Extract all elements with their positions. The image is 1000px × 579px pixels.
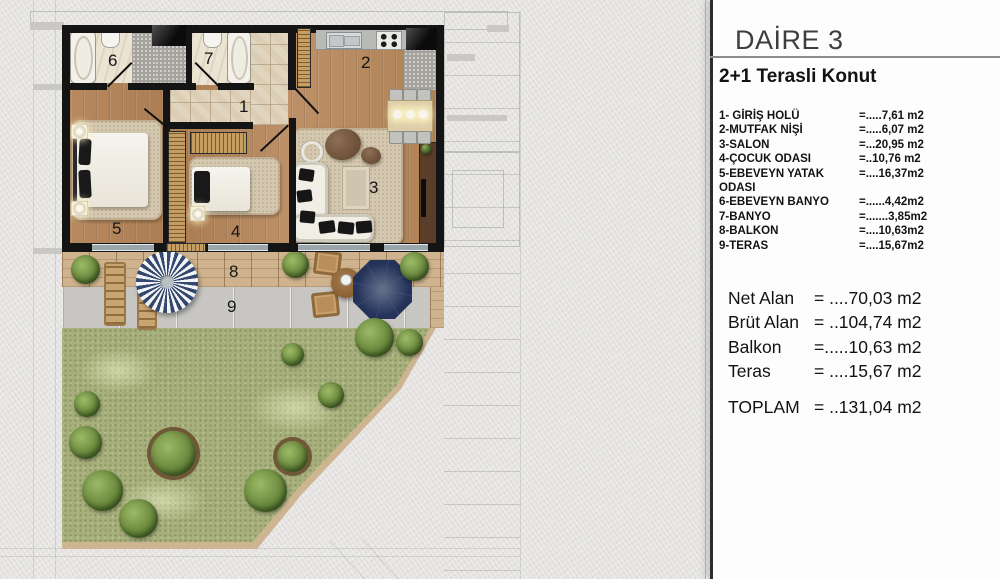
sketch-hatch-2 xyxy=(487,25,509,32)
room-list-item-label: 2-MUTFAK NİŞİ xyxy=(719,123,859,137)
room-list-item: 9-TERAS=....15,67m2 xyxy=(719,239,969,253)
hall-tiles-upper xyxy=(250,33,288,125)
table-plate xyxy=(419,110,428,119)
room-number-hall: 1 xyxy=(239,97,248,117)
summary-item-label: Balkon xyxy=(728,335,814,359)
window xyxy=(298,244,370,251)
hall-tiles-lower xyxy=(170,90,250,123)
sofa-cushion xyxy=(356,220,373,233)
bedroom4-dresser xyxy=(190,132,247,154)
room-list-item-label: 5-EBEVEYN YATAK ODASI xyxy=(719,167,859,196)
summary-item-label: Net Alan xyxy=(728,286,814,310)
sketch-top-fill-left xyxy=(30,22,64,30)
kitchen-sink xyxy=(326,32,362,49)
summary-item: Teras= ....15,67 m2 xyxy=(728,359,968,383)
nightstand-lamp xyxy=(73,202,86,215)
kitchen-tall-cabinet xyxy=(406,28,437,50)
bed-pillow xyxy=(78,139,91,166)
summary-item: Balkon=.....10,63 m2 xyxy=(728,335,968,359)
bush xyxy=(82,470,123,511)
total-label: TOPLAM xyxy=(728,397,814,418)
wall-room4-right xyxy=(289,118,296,251)
entry-wardrobe xyxy=(297,28,311,88)
summary-item: Net Alan= ....70,03 m2 xyxy=(728,286,968,310)
wall-bath-bottom-1 xyxy=(69,83,107,90)
sink-basin xyxy=(344,36,360,46)
room-list-item-label: 4-ÇOCUK ODASI xyxy=(719,152,859,166)
sofa-cushion xyxy=(296,189,312,203)
room-list-item-label: 1- GİRİŞ HOLÜ xyxy=(719,109,859,123)
garden xyxy=(58,328,448,550)
room-number-cocuk: 4 xyxy=(231,222,240,242)
sketch-tick-left-1 xyxy=(33,84,62,90)
sketch-tick-left-2 xyxy=(33,248,62,254)
room-list-item-value: =....15,67m2 xyxy=(859,239,924,253)
bush-with-soil xyxy=(151,431,196,476)
bush xyxy=(282,251,309,278)
room-number-ebanyo: 6 xyxy=(108,51,117,71)
total-value: = ..131,04 m2 xyxy=(814,397,922,418)
table-kettle xyxy=(340,274,352,286)
summary-item-label: Teras xyxy=(728,359,814,383)
dining-chair xyxy=(389,131,403,144)
nightstand-lamp xyxy=(73,125,86,138)
sofa-cushion xyxy=(318,220,336,234)
window xyxy=(384,244,428,251)
striped-parasol xyxy=(136,251,198,313)
summary-item-value: = ..104,74 m2 xyxy=(814,310,922,334)
sun-lounger xyxy=(104,262,126,326)
shaft-mosaic xyxy=(155,45,186,84)
room-list-item: 3-SALON=...20,95 m2 xyxy=(719,138,969,152)
room-list-item-label: 3-SALON xyxy=(719,138,859,152)
room-list-item: 6-EBEVEYN BANYO=......4,42m2 xyxy=(719,195,969,209)
bed-pillow xyxy=(78,170,91,199)
room-list-item-value: =....10,63m2 xyxy=(859,224,924,238)
bush xyxy=(71,255,100,284)
bush xyxy=(318,382,344,408)
floorplan-sheet: 1 2 3 4 5 6 7 8 9 DAİRE 3 2+1 Terasli Ko… xyxy=(0,0,1000,579)
grass-light-spot xyxy=(78,348,158,393)
room-number-salon: 3 xyxy=(369,178,378,198)
dining-chair xyxy=(403,131,417,144)
room-list-item-value: =...20,95 m2 xyxy=(859,138,924,152)
sketch-neighbor-bed xyxy=(452,170,504,228)
bush xyxy=(400,252,429,281)
side-table xyxy=(301,141,323,163)
room-list-item-value: =......4,42m2 xyxy=(859,195,924,209)
sketch-hatch-3 xyxy=(447,115,507,121)
balcony-door-threshold xyxy=(166,243,206,252)
room-number-banyo: 7 xyxy=(204,49,213,69)
bush xyxy=(396,329,423,356)
window xyxy=(208,244,268,251)
wardrobe-divider xyxy=(168,131,186,243)
sketch-hatch-1 xyxy=(447,54,475,61)
info-panel: DAİRE 3 2+1 Terasli Konut 1- GİRİŞ HOLÜ=… xyxy=(710,0,1000,579)
wall-bath-bottom-3 xyxy=(218,83,254,90)
table-plate xyxy=(393,110,402,119)
summary-item: Brüt Alan= ..104,74 m2 xyxy=(728,310,968,334)
room-number-kitchen: 2 xyxy=(361,53,370,73)
room-list-item-value: =....16,37m2 xyxy=(859,167,924,196)
sketch-vline-right xyxy=(520,11,521,579)
unit-type-subtitle: 2+1 Terasli Konut xyxy=(719,66,877,88)
room-list-item-label: 6-EBEVEYN BANYO xyxy=(719,195,859,209)
tv-screen xyxy=(421,179,426,217)
wall-hall-bottom xyxy=(163,122,253,129)
sink-basin xyxy=(329,35,344,47)
bush xyxy=(69,426,102,459)
room-number-teras: 9 xyxy=(227,297,236,317)
kitchen-corner-tiles xyxy=(404,48,437,90)
sofa-cushion xyxy=(298,168,315,182)
room-list-item: 5-EBEVEYN YATAK ODASI=....16,37m2 xyxy=(719,167,969,196)
wall-right xyxy=(436,25,444,252)
window xyxy=(92,244,154,251)
room-list-item: 8-BALKON=....10,63m2 xyxy=(719,224,969,238)
room-number-yatak: 5 xyxy=(112,219,121,239)
stove-burners xyxy=(376,31,402,50)
bed-pillow xyxy=(194,171,210,203)
bush-with-soil xyxy=(277,441,308,472)
bush xyxy=(74,391,100,417)
table-plate xyxy=(406,110,415,119)
bush xyxy=(281,343,304,366)
summary-item-label: Brüt Alan xyxy=(728,310,814,334)
summary-item-value: =.....10,63 m2 xyxy=(814,335,922,359)
shaft-box xyxy=(152,25,190,46)
bathtub-basin xyxy=(231,36,248,80)
wall-left xyxy=(62,25,70,252)
room-list-item-value: =.....6,07 m2 xyxy=(859,123,924,137)
summary-item-value: = ....70,03 m2 xyxy=(814,286,922,310)
room-list-item-label: 8-BALKON xyxy=(719,224,859,238)
title-divider xyxy=(710,56,1000,58)
room-number-balkon: 8 xyxy=(229,262,238,282)
room-list-item: 1- GİRİŞ HOLÜ=.....7,61 m2 xyxy=(719,109,969,123)
wall-shaft-right xyxy=(186,25,192,84)
page-title: DAİRE 3 xyxy=(735,25,844,56)
room-area-list: 1- GİRİŞ HOLÜ=.....7,61 m22-MUTFAK NİŞİ=… xyxy=(719,109,969,253)
bathtub-basin xyxy=(74,36,93,80)
nightstand-lamp xyxy=(192,208,204,220)
coffee-table xyxy=(342,166,370,210)
room-list-item-value: =..10,76 m2 xyxy=(859,152,921,166)
sofa-cushion xyxy=(300,210,316,223)
plant-pot xyxy=(421,144,431,154)
room-list-item-value: =.....7,61 m2 xyxy=(859,109,924,123)
dining-chair xyxy=(417,131,431,144)
bush xyxy=(119,499,158,538)
total-row: TOPLAM = ..131,04 m2 xyxy=(728,397,968,418)
terrace-wood-edge xyxy=(430,287,444,328)
sofa-cushion xyxy=(337,221,354,235)
summary-item-value: = ....15,67 m2 xyxy=(814,359,922,383)
sketch-bottom-line-2 xyxy=(0,556,520,557)
bush xyxy=(355,318,394,357)
room-list-item-label: 7-BANYO xyxy=(719,210,859,224)
room-list-item-value: =.......3,85m2 xyxy=(859,210,927,224)
room-list-item: 7-BANYO=.......3,85m2 xyxy=(719,210,969,224)
room-list-item: 2-MUTFAK NİŞİ=.....6,07 m2 xyxy=(719,123,969,137)
panel-outer-line xyxy=(705,0,706,579)
sketch-neighbor-room-1 xyxy=(444,12,520,152)
wall-bath-bottom-2 xyxy=(128,83,196,90)
bush xyxy=(244,469,287,512)
room-list-item: 4-ÇOCUK ODASI=..10,76 m2 xyxy=(719,152,969,166)
room-list-item-label: 9-TERAS xyxy=(719,239,859,253)
area-summary-list: Net Alan= ....70,03 m2Brüt Alan= ..104,7… xyxy=(728,286,968,384)
wall-hall-right xyxy=(288,25,296,90)
